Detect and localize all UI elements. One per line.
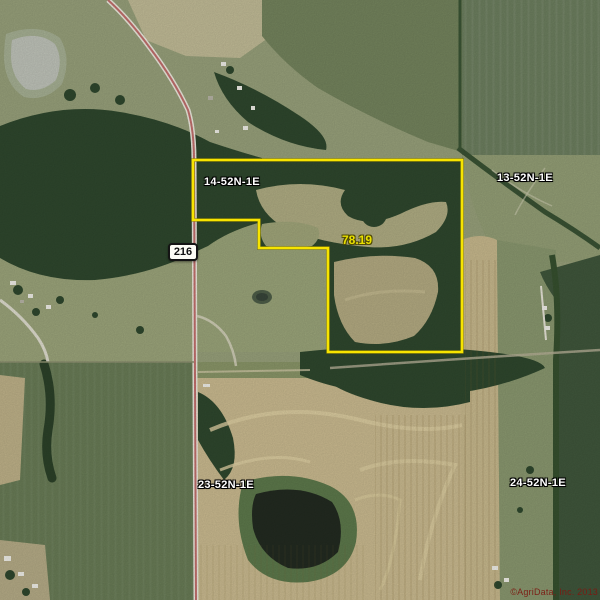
section-label-14-52n-1e: 14-52N-1E (204, 176, 260, 188)
copyright-attribution: ©AgriData, Inc. 2013 (510, 587, 598, 597)
aerial-imagery (0, 0, 600, 600)
road-shield-216: 216 (168, 243, 198, 261)
section-label-23-52n-1e: 23-52N-1E (198, 479, 254, 491)
parcel-acreage-label: 78.19 (342, 233, 372, 247)
photo-grain (0, 0, 600, 600)
aerial-map[interactable]: 14-52N-1E 13-52N-1E 23-52N-1E 24-52N-1E … (0, 0, 600, 600)
section-label-24-52n-1e: 24-52N-1E (510, 477, 566, 489)
section-label-13-52n-1e: 13-52N-1E (497, 172, 553, 184)
